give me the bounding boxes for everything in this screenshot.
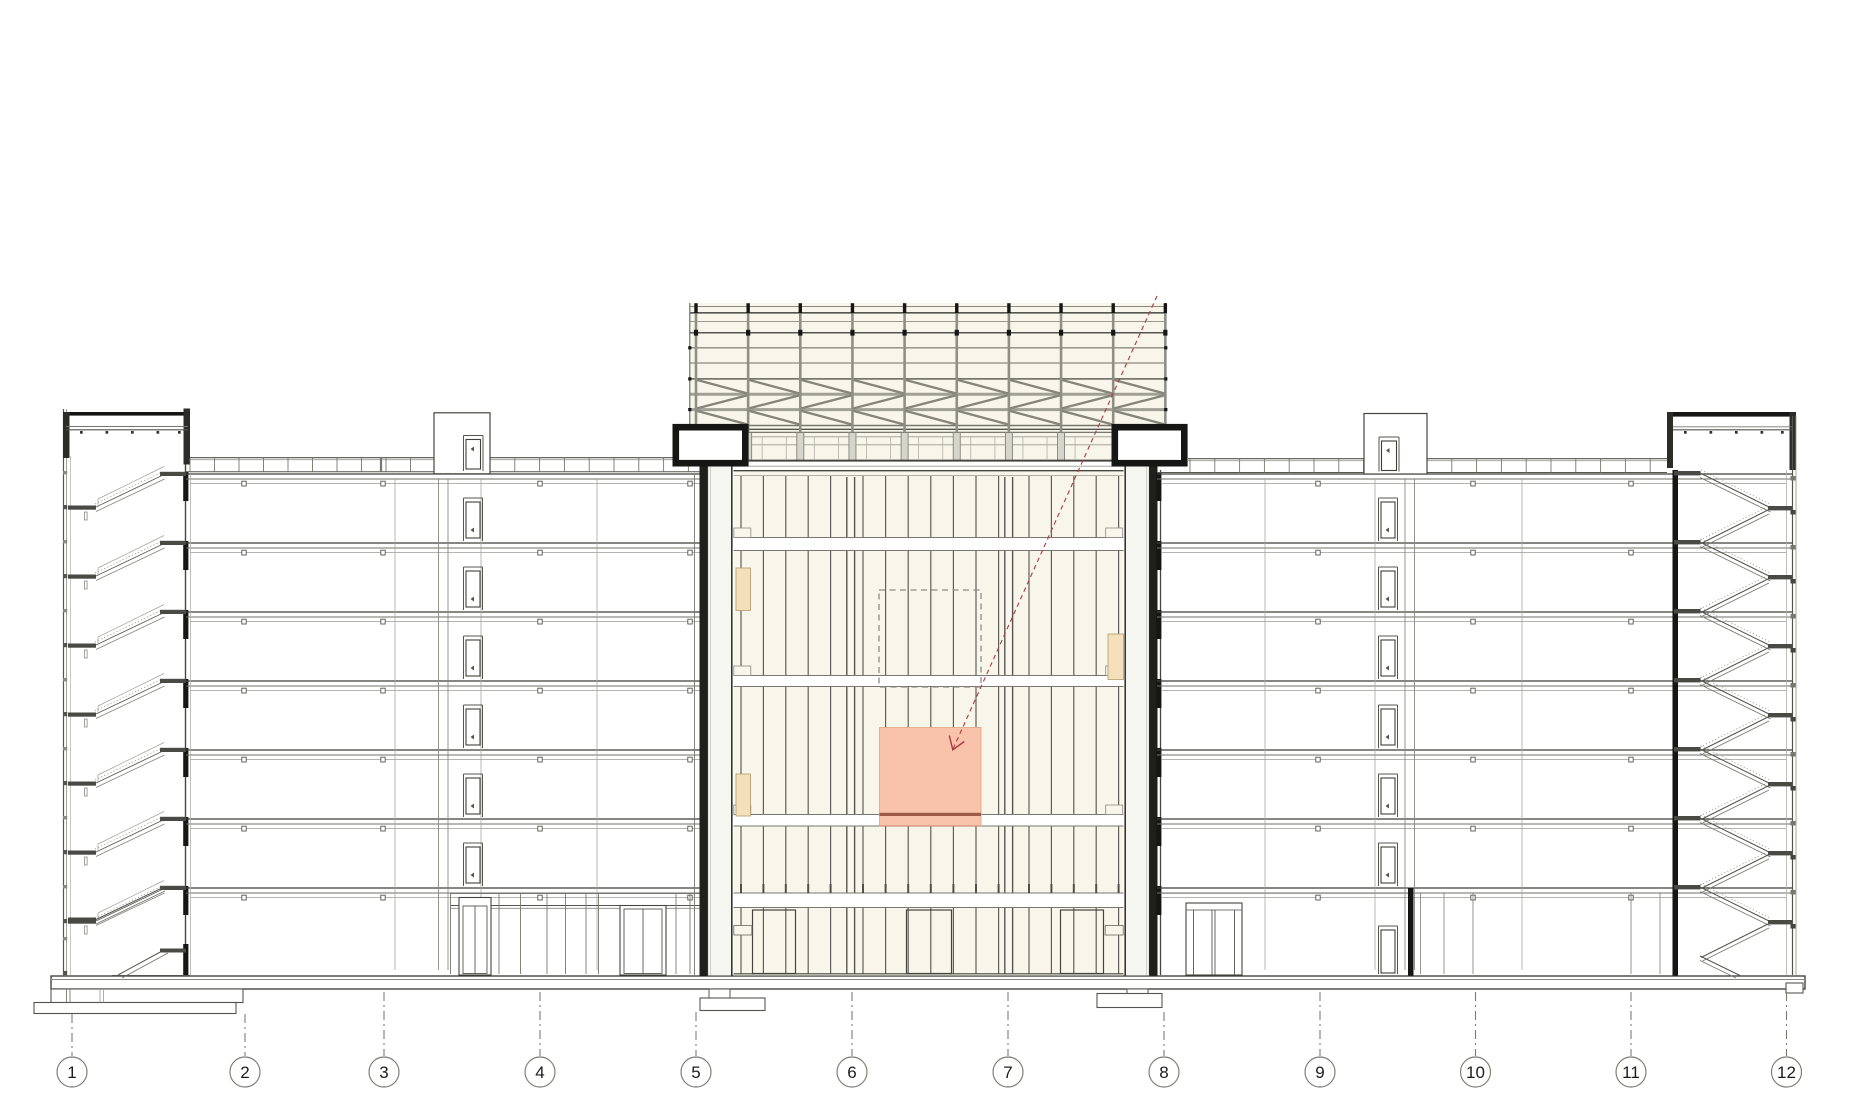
svg-text:4: 4	[535, 1063, 544, 1082]
svg-text:12: 12	[1777, 1063, 1796, 1082]
svg-text:8: 8	[1159, 1063, 1168, 1082]
svg-text:3: 3	[379, 1063, 388, 1082]
svg-text:10: 10	[1466, 1063, 1485, 1082]
svg-text:6: 6	[847, 1063, 856, 1082]
svg-text:11: 11	[1622, 1063, 1640, 1082]
svg-text:7: 7	[1003, 1063, 1012, 1082]
svg-text:2: 2	[240, 1063, 249, 1082]
svg-text:9: 9	[1315, 1063, 1324, 1082]
svg-text:1: 1	[67, 1063, 76, 1082]
svg-text:5: 5	[691, 1063, 700, 1082]
